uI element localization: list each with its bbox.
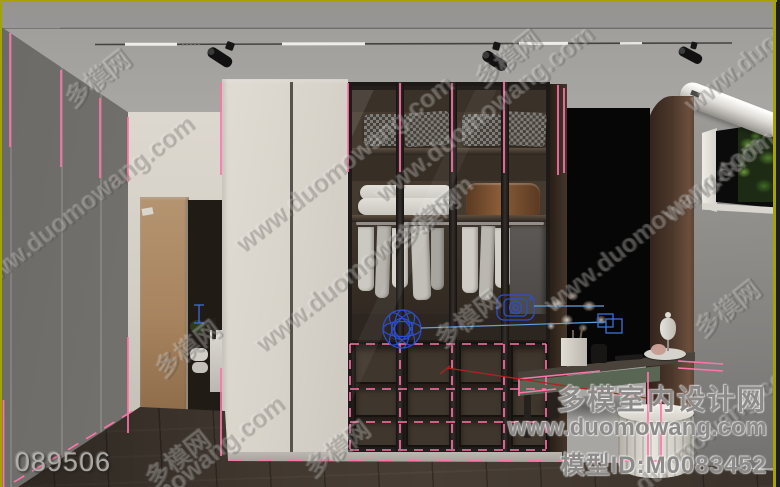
light-track-rail	[95, 43, 732, 45]
viewport-border-top	[0, 0, 777, 2]
viewport-edge-strip	[776, 0, 780, 487]
model-id-watermark: 模型ID:M0083452	[561, 445, 767, 480]
site-name-watermark: 多模室内设计网	[557, 378, 767, 418]
track-spotlight	[677, 41, 704, 65]
viewport-border-right	[773, 0, 776, 487]
selected-sphere-wireframe[interactable]	[383, 309, 421, 349]
selected-fixture-wireframe[interactable]	[497, 295, 534, 320]
image-id-watermark: 089506	[15, 447, 111, 478]
viewport-canvas[interactable]: www.duomowang.com多模网多模网www.duomowang.com…	[0, 0, 780, 487]
site-url-watermark: www.duomowang.com	[508, 414, 767, 442]
track-spotlight	[480, 41, 509, 72]
viewport-border-left	[0, 0, 2, 487]
track-spotlight	[205, 41, 235, 69]
